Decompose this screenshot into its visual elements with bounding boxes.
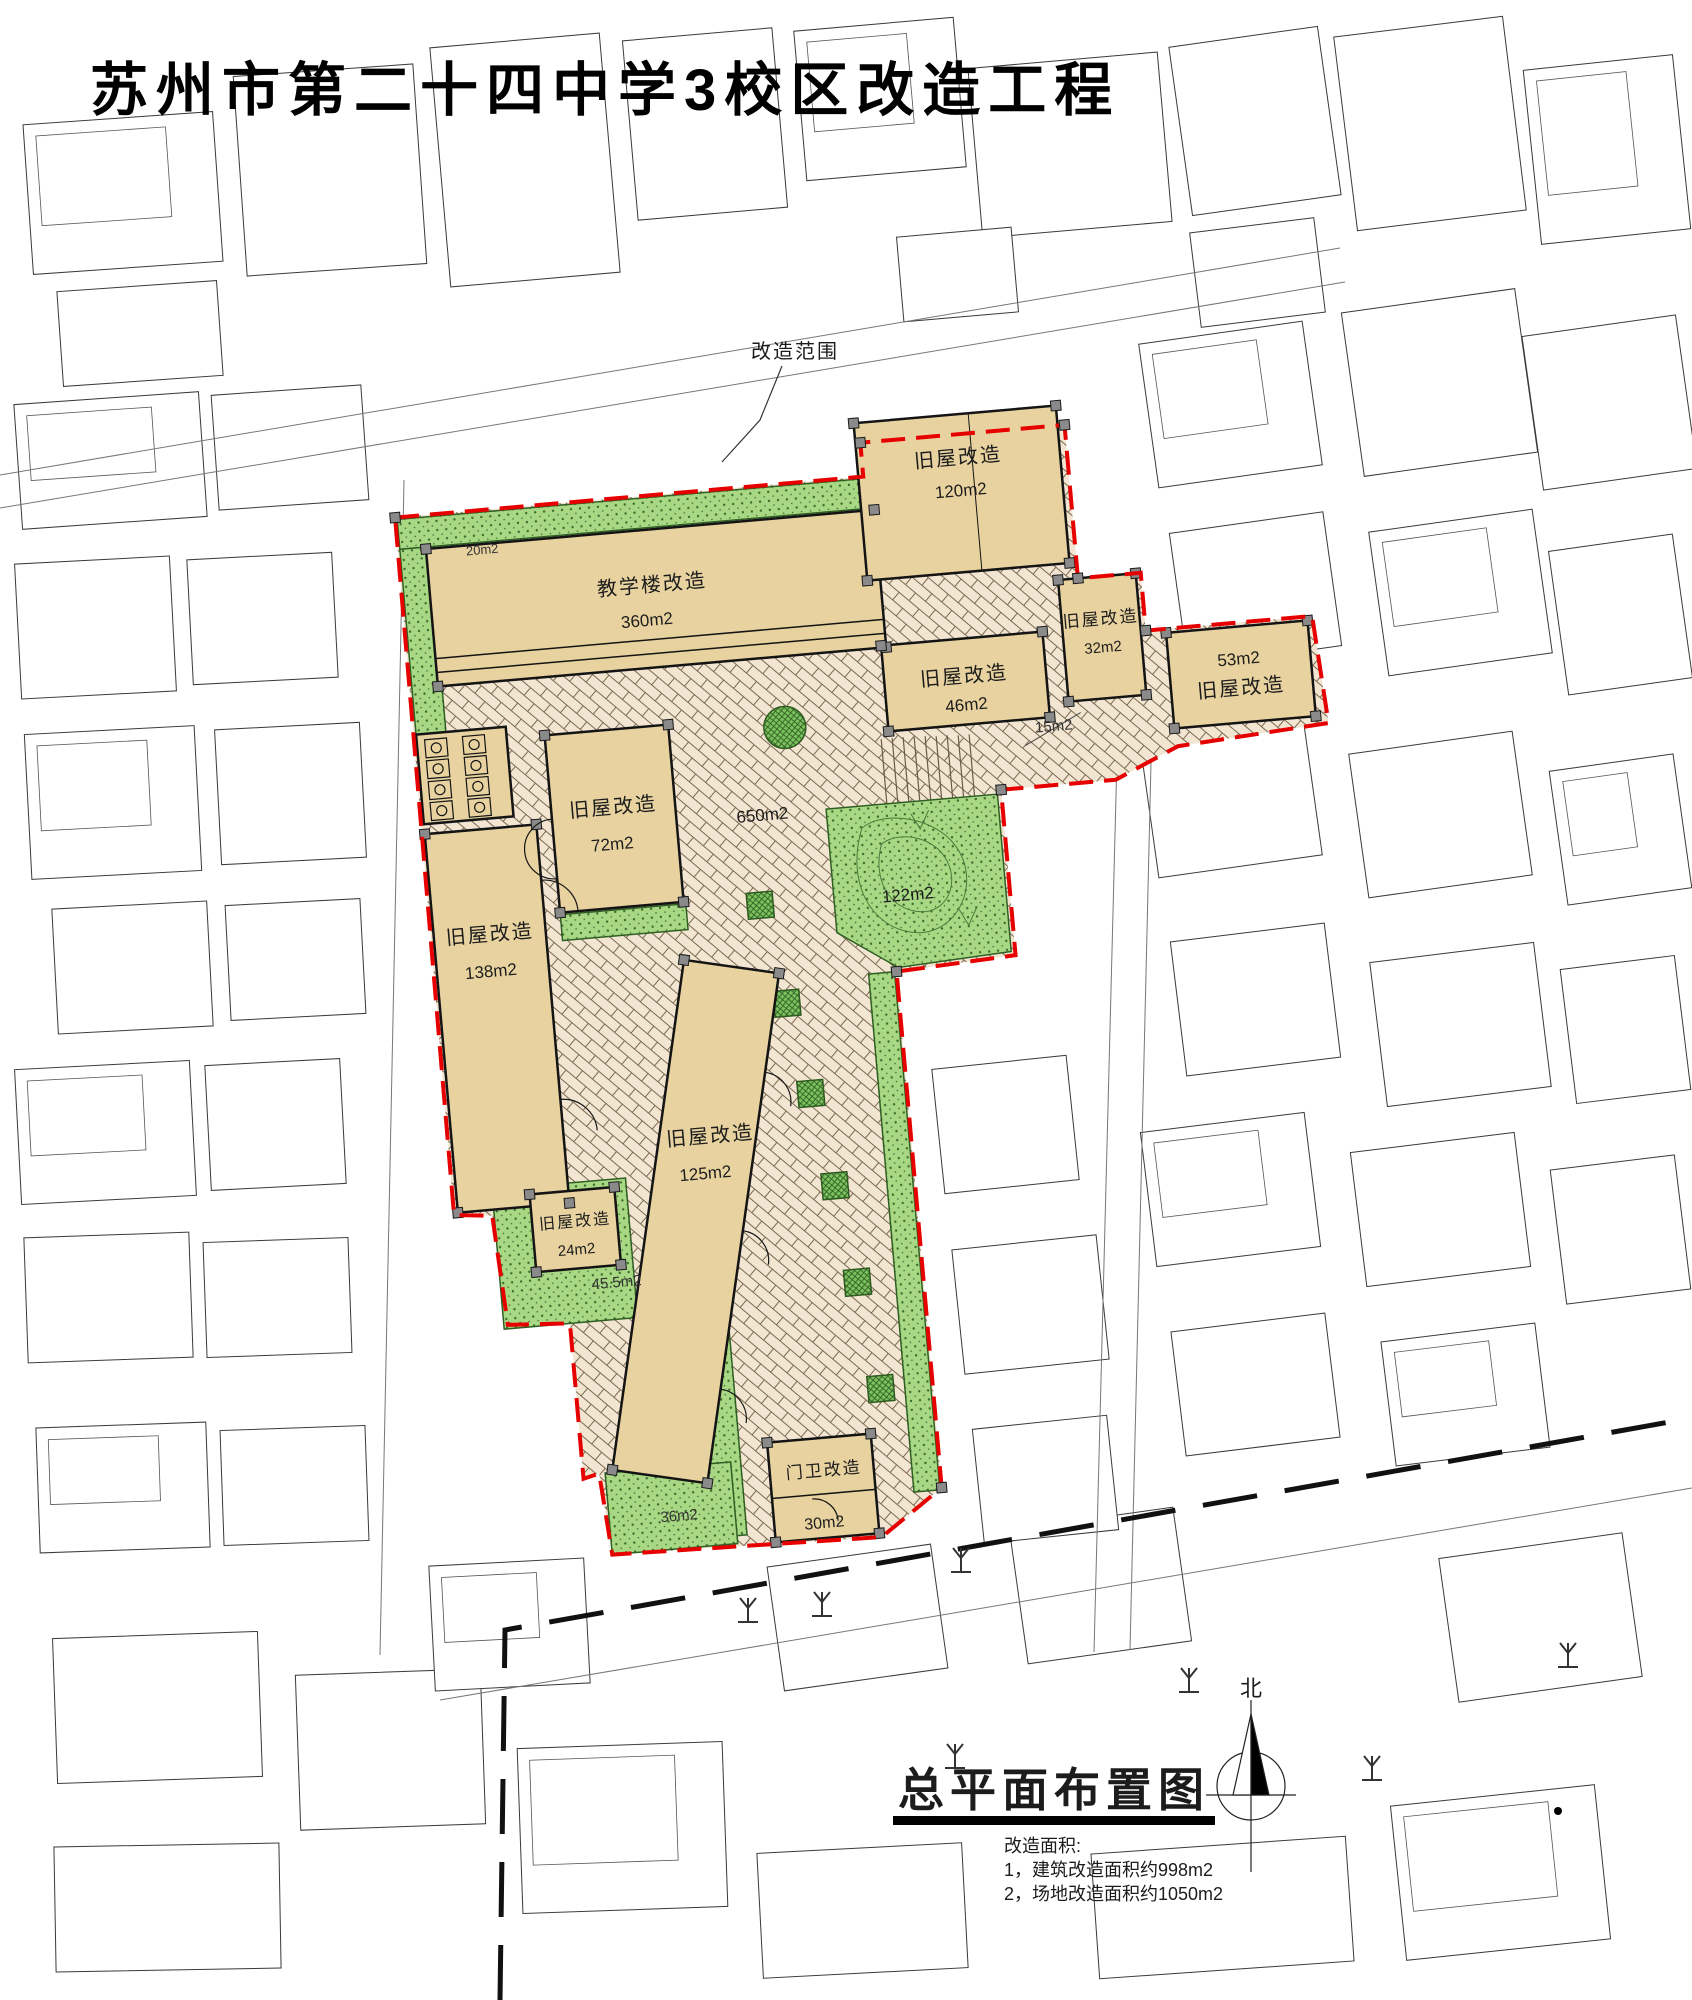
column-marker xyxy=(678,954,689,965)
building-53-shape xyxy=(1166,620,1316,728)
survey-point xyxy=(1554,1807,1562,1815)
young-tree-symbol xyxy=(738,1598,758,1622)
column-marker xyxy=(1064,558,1075,569)
bg-building-block xyxy=(757,1843,968,1979)
legend-note-1: 1，建筑改造面积约998m2 xyxy=(1004,1860,1213,1880)
column-marker xyxy=(1169,723,1180,734)
drawing-title: 苏州市第二十四中学3校区改造工程 xyxy=(90,58,1120,123)
column-marker xyxy=(678,896,689,907)
bg-building-block xyxy=(1370,942,1551,1106)
bg-building-block xyxy=(1390,1785,1610,1961)
column-marker xyxy=(607,1464,618,1475)
column-marker xyxy=(524,1189,535,1200)
bg-building-block xyxy=(622,28,787,220)
bg-building-block xyxy=(187,552,338,684)
bg-building-block xyxy=(1169,26,1341,215)
bg-building-block xyxy=(1350,1132,1530,1286)
column-marker xyxy=(616,1259,627,1270)
bg-building-block xyxy=(1139,321,1323,488)
bg-building-block xyxy=(1549,534,1692,695)
column-marker xyxy=(555,907,566,918)
bg-building-block xyxy=(54,1843,281,1972)
column-marker xyxy=(1050,400,1061,411)
column-marker xyxy=(539,730,550,741)
label-46-area: 46m2 xyxy=(945,694,989,717)
bg-building-block xyxy=(1549,754,1692,905)
label-gate-area: 30m2 xyxy=(804,1513,845,1533)
label-53-area: 53m2 xyxy=(1217,648,1261,671)
bg-building-block xyxy=(1523,55,1690,245)
label-24-area: 24m2 xyxy=(557,1240,596,1260)
bg-building-block xyxy=(1341,289,1537,477)
bg-building-block xyxy=(1171,1313,1340,1456)
bg-building-block xyxy=(517,1741,728,1913)
column-marker xyxy=(433,681,444,692)
column-marker xyxy=(1310,711,1321,722)
bg-building-block xyxy=(15,556,177,699)
bg-building-block xyxy=(1522,315,1692,490)
column-marker xyxy=(663,719,674,730)
bg-building-block xyxy=(36,1422,210,1553)
bg-building-block xyxy=(14,392,207,530)
scope-label: 改造范围 xyxy=(751,340,839,363)
column-marker xyxy=(883,726,894,737)
young-tree-symbol xyxy=(1362,1756,1382,1780)
bg-building-block xyxy=(1334,16,1526,230)
bg-building-block xyxy=(53,1631,263,1783)
bg-building-block xyxy=(1550,1155,1691,1304)
column-marker xyxy=(770,1537,781,1548)
label-lawn-gate-area: 36m2 xyxy=(660,1506,699,1526)
column-marker xyxy=(848,418,859,429)
site-plan-svg: 教学楼改造 360m2 旧屋改造 120m2 旧屋改造 46m2 旧屋改造 32… xyxy=(0,0,1692,2000)
legend-underline xyxy=(893,1816,1215,1825)
column-marker xyxy=(1063,696,1074,707)
bg-building-block xyxy=(1369,509,1553,676)
bg-building-block xyxy=(897,227,1019,322)
legend-note-2: 2，场地改造面积约1050m2 xyxy=(1004,1884,1223,1904)
legend-title: 总平面布置图 xyxy=(898,1764,1210,1816)
bg-building-block xyxy=(24,1232,193,1363)
bg-building-block xyxy=(1170,923,1340,1076)
column-marker xyxy=(564,1198,575,1209)
column-marker xyxy=(702,1478,713,1489)
bg-building-block xyxy=(211,385,369,510)
column-marker xyxy=(762,1437,773,1448)
column-marker xyxy=(1053,575,1064,586)
column-marker xyxy=(869,504,880,515)
scope-leader-line xyxy=(722,366,782,462)
bg-building-block xyxy=(215,722,367,864)
young-tree-symbol xyxy=(951,1548,971,1572)
bg-building-block xyxy=(429,1558,590,1691)
bg-building-block xyxy=(203,1238,352,1358)
building-32-shape xyxy=(1058,573,1146,701)
bg-building-block xyxy=(295,1669,485,1830)
bg-building-block xyxy=(1349,731,1533,898)
site-plan-page: 教学楼改造 360m2 旧屋改造 120m2 旧屋改造 46m2 旧屋改造 32… xyxy=(0,0,1692,2000)
young-tree-symbol xyxy=(1179,1668,1199,1692)
bg-building-block xyxy=(1190,218,1326,328)
bg-building-block xyxy=(15,1061,197,1205)
column-marker xyxy=(862,575,873,586)
bg-building-block xyxy=(1140,1112,1320,1266)
label-passage-area: 15m2 xyxy=(1034,716,1073,736)
bg-building-block xyxy=(1560,955,1691,1103)
column-marker xyxy=(420,544,431,555)
column-marker xyxy=(1037,626,1048,637)
legend-notes-heading: 改造面积: xyxy=(1004,1836,1081,1856)
bg-building-block xyxy=(225,899,366,1021)
column-marker xyxy=(773,968,784,979)
bg-building-block xyxy=(57,281,223,387)
column-marker xyxy=(609,1182,620,1193)
bg-building-block xyxy=(1091,1836,1354,1978)
column-marker xyxy=(865,1428,876,1439)
bg-building-block xyxy=(52,901,213,1034)
bg-building-block xyxy=(1439,1533,1642,1702)
bg-building-block xyxy=(220,1426,369,1546)
bg-building-block xyxy=(932,1055,1079,1193)
bg-building-block xyxy=(767,1544,948,1691)
label-72-area: 72m2 xyxy=(590,833,634,856)
label-32-area: 32m2 xyxy=(1084,638,1123,658)
north-label: 北 xyxy=(1240,1676,1262,1701)
bg-building-block xyxy=(952,1235,1109,1374)
column-marker xyxy=(876,640,887,651)
bg-building-block xyxy=(24,726,201,880)
bg-building-block xyxy=(23,112,223,275)
bg-building-block xyxy=(205,1059,346,1191)
label-lawn-strip-area: 20m2 xyxy=(465,541,499,559)
street-line xyxy=(380,480,404,1655)
column-marker xyxy=(531,1267,542,1278)
building-72-shape xyxy=(545,725,684,913)
bg-building-block xyxy=(972,1415,1118,1543)
column-marker xyxy=(1141,689,1152,700)
bg-building-block xyxy=(1381,1323,1550,1466)
